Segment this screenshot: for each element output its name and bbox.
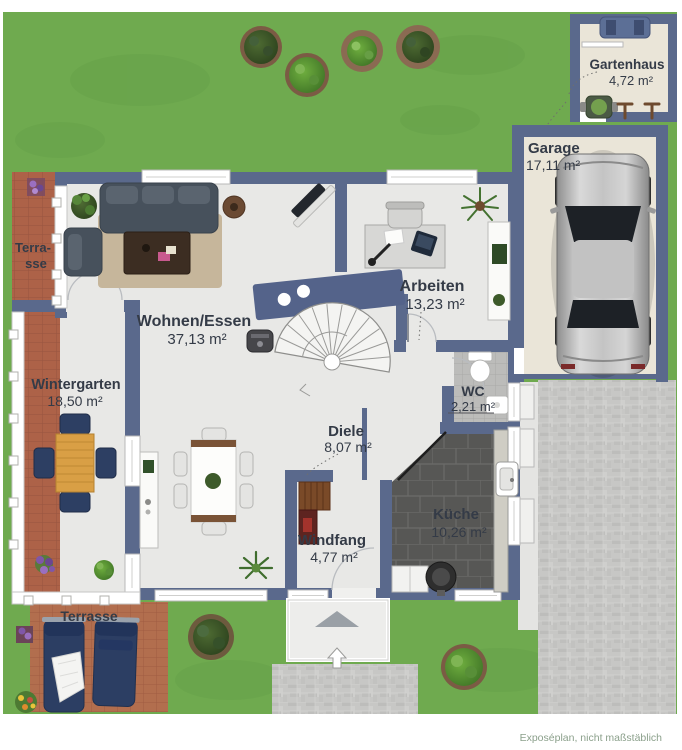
terrace-left-flowerpot bbox=[27, 178, 45, 196]
sideboard bbox=[140, 452, 158, 548]
label-diele-area: 8,07 m² bbox=[324, 439, 372, 455]
office-shelf bbox=[488, 222, 510, 320]
label-windfang: Windfang bbox=[298, 532, 366, 549]
sun-lounger-right bbox=[91, 616, 140, 707]
label-gartenhaus: Gartenhaus bbox=[589, 57, 664, 72]
label-gartenhaus-area: 4,72 m² bbox=[609, 73, 654, 88]
label-wohnen-essen: Wohnen/Essen bbox=[137, 313, 251, 330]
label-kueche-area: 10,26 m² bbox=[431, 524, 487, 540]
entrance-porch bbox=[288, 600, 388, 668]
robot-vacuum bbox=[247, 330, 273, 352]
label-windfang-area: 4,77 m² bbox=[310, 549, 358, 565]
frame-left bbox=[0, 0, 3, 750]
side-table-top bbox=[230, 203, 238, 211]
label-wintergarten: Wintergarten bbox=[31, 377, 120, 393]
sofa bbox=[100, 183, 218, 233]
living-plant bbox=[71, 193, 97, 219]
label-garage-area: 17,11 m² bbox=[526, 157, 581, 173]
label-wc-area: 2,21 m² bbox=[451, 399, 496, 414]
coffee-table bbox=[124, 232, 190, 274]
toilet bbox=[468, 352, 492, 382]
floor-plan-drawing: Gartenhaus 4,72 m² Garage 17,11 m² Terra… bbox=[0, 0, 682, 750]
label-terrasse-left-2: sse bbox=[25, 256, 47, 271]
sun-lounger-left bbox=[42, 617, 86, 712]
gartenhaus-lounger bbox=[600, 17, 650, 38]
label-arbeiten-area: 13,23 m² bbox=[405, 296, 464, 313]
label-garage: Garage bbox=[528, 140, 580, 157]
label-wohnen-essen-area: 37,13 m² bbox=[167, 331, 226, 348]
label-arbeiten: Arbeiten bbox=[400, 278, 465, 295]
driveway-paving bbox=[538, 380, 676, 714]
frame-top bbox=[0, 0, 682, 12]
label-diele: Diele bbox=[328, 423, 364, 440]
car bbox=[550, 150, 657, 378]
terrace-bottom-flowers-mixed bbox=[15, 691, 37, 713]
frame-right bbox=[677, 0, 682, 750]
desk-chair bbox=[386, 202, 424, 228]
label-terrasse-left-1: Terra- bbox=[15, 240, 51, 255]
label-wintergarten-area: 18,50 m² bbox=[47, 393, 103, 409]
footer-note: Exposéplan, nicht maßstäblich bbox=[520, 732, 663, 744]
terrace-bottom-flowers-purple bbox=[16, 626, 33, 643]
desk bbox=[365, 225, 445, 268]
floor-plan-page: Gartenhaus 4,72 m² Garage 17,11 m² Terra… bbox=[0, 0, 682, 750]
wintergarten-plant-green bbox=[94, 560, 114, 580]
label-kueche: Küche bbox=[433, 506, 479, 523]
armchair bbox=[64, 228, 102, 276]
entrance-path-paving bbox=[272, 664, 418, 716]
label-terrasse-bottom: Terrasse bbox=[60, 608, 118, 624]
kitchen-counter-bottom bbox=[392, 566, 428, 592]
label-wc: WC bbox=[461, 383, 484, 399]
